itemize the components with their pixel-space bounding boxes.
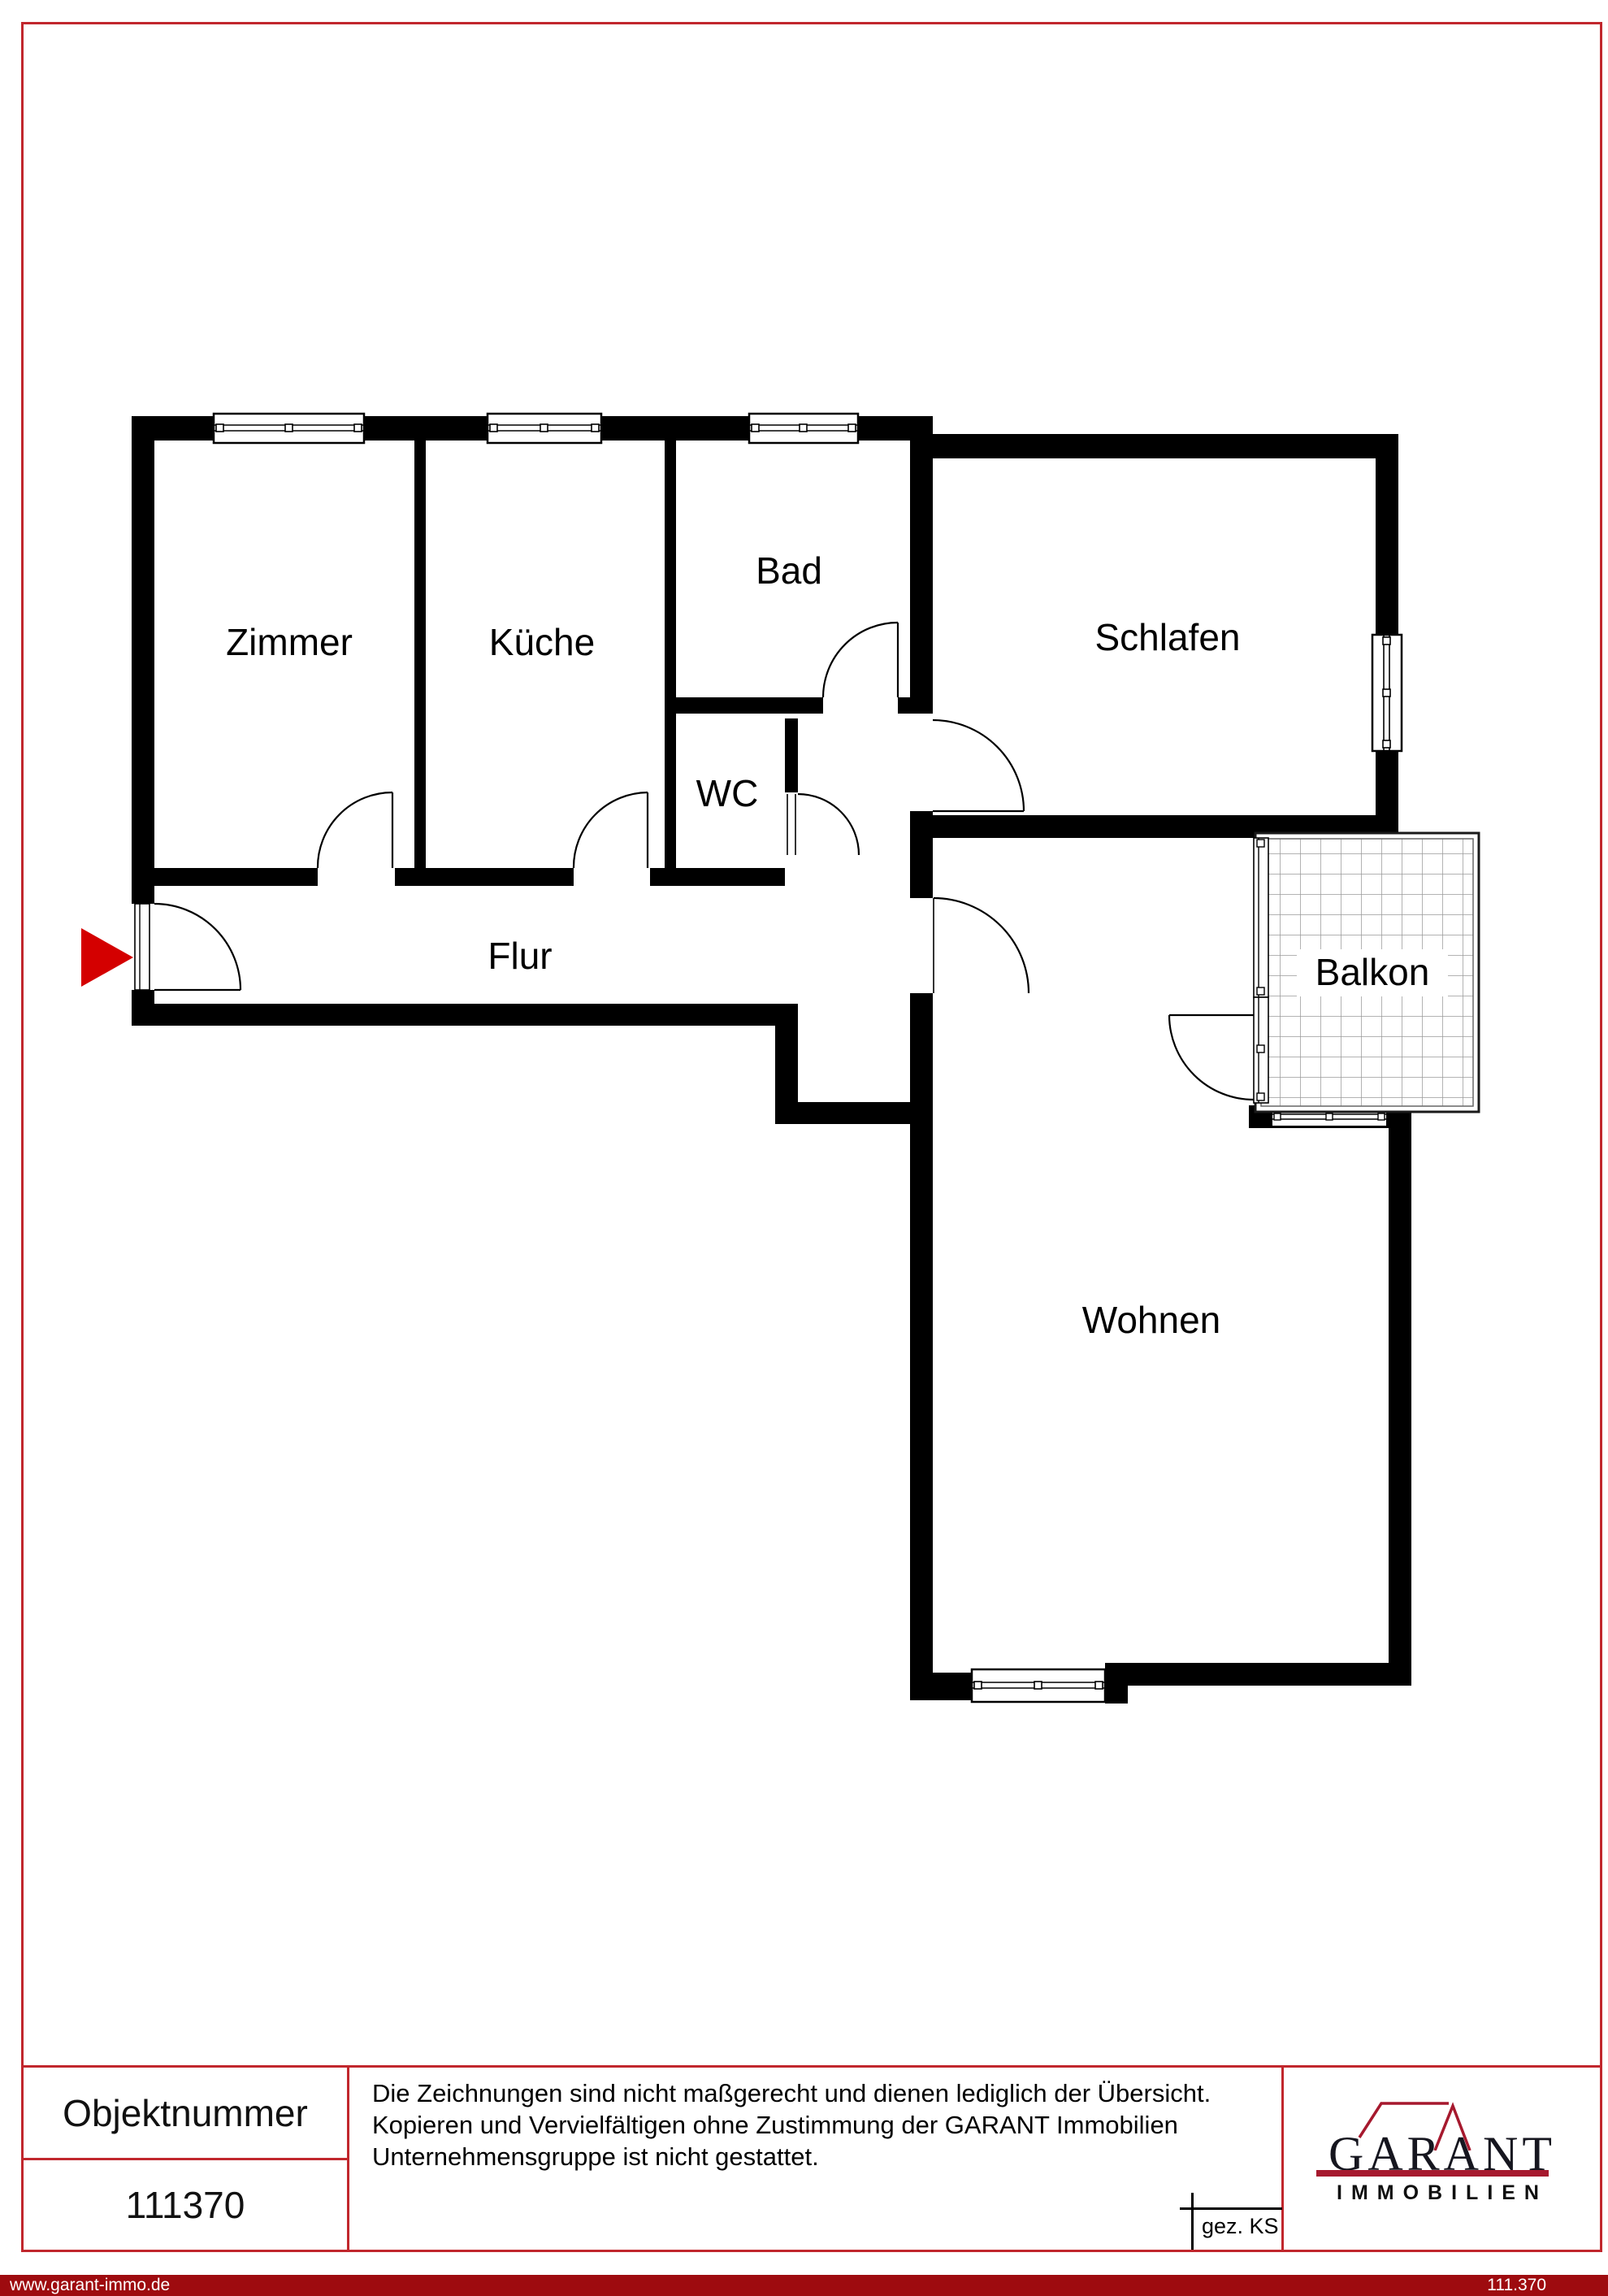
zimmer-door: [318, 792, 392, 868]
logo-roof-icon: [1341, 2097, 1479, 2151]
border-left: [21, 22, 24, 2252]
page-border-lines: [21, 22, 1602, 2252]
kueche-door: [574, 792, 648, 868]
balcony-door: [1169, 1015, 1254, 1100]
logo-underline: [1316, 2170, 1549, 2177]
wall-partition-zimmer-kueche: [414, 441, 426, 868]
border-top: [21, 22, 1602, 24]
window-kueche: [488, 414, 601, 443]
signature-box-left-line: [1191, 2193, 1194, 2250]
kueche-door-arc: [574, 792, 648, 868]
wall-hall-seg3: [650, 868, 785, 886]
wc-door: [787, 794, 859, 855]
wall-schlafen-top: [933, 434, 1398, 458]
wall-bad-schlafen-b: [910, 811, 933, 898]
wall-wohnen-bottom-right: [1105, 1663, 1411, 1686]
wall-wohnen-right: [1389, 1128, 1411, 1686]
balcony-door-panel: [1254, 838, 1268, 997]
bottom-bar-reference: 111.370: [1487, 2276, 1546, 2295]
wall-hall-seg2: [395, 868, 574, 886]
disclaimer-line-3: Unternehmensgruppe ist nicht gestattet.: [372, 2141, 1276, 2172]
room-label-balkon: Balkon: [1315, 951, 1430, 993]
object-number-label: Objektnummer: [24, 2068, 347, 2158]
window-schlafen: [1372, 635, 1402, 751]
wall-partition-kueche-bad: [665, 441, 676, 868]
wall-wc-right: [785, 718, 798, 792]
room-label-zimmer: Zimmer: [226, 621, 353, 663]
disclaimer-line-2: Kopieren und Vervielfältigen ohne Zustim…: [372, 2109, 1276, 2141]
balcony-door-arc: [1169, 1015, 1254, 1100]
wc-door-arc: [798, 794, 859, 855]
disclaimer-text: Die Zeichnungen sind nicht maßgerecht un…: [372, 2077, 1276, 2172]
wohnen-door: [934, 898, 1029, 993]
object-number-value: 111370: [24, 2160, 347, 2250]
bad-door-arc: [823, 623, 898, 697]
room-label-schlafen: Schlafen: [1094, 616, 1240, 658]
entrance-door-arc: [154, 904, 241, 990]
wall-bad-bottom-stub: [898, 697, 910, 714]
balcony-window-panel: [1254, 997, 1268, 1103]
room-label-kueche: Küche: [489, 621, 595, 663]
wall-hall-seg1: [154, 868, 318, 886]
wall-bad-schlafen-a: [910, 416, 933, 714]
logo-subtitle: IMMOBILIEN: [1282, 2181, 1602, 2205]
schlafen-door: [933, 720, 1024, 811]
room-label-bad: Bad: [756, 549, 822, 592]
wall-flur-bottom: [132, 1004, 798, 1026]
wall-bad-schlafen-c: [910, 993, 933, 1124]
floor-plan-drawing: Zimmer Küche Bad WC Schlafen Flur Balkon…: [0, 0, 1608, 2296]
windows: [214, 414, 1402, 1702]
disclaimer-line-1: Die Zeichnungen sind nicht maßgerecht un…: [372, 2077, 1276, 2109]
doors: [135, 623, 1254, 1100]
wohnen-door-arc: [934, 898, 1029, 993]
room-label-flur: Flur: [488, 935, 552, 977]
walls: [132, 416, 1411, 1704]
wall-bad-bottom: [665, 697, 823, 714]
bottom-bar: www.garant-immo.de 111.370: [0, 2275, 1608, 2296]
zimmer-door-arc: [318, 792, 392, 868]
signature-box-top-line: [1180, 2207, 1282, 2210]
schlafen-door-arc: [933, 720, 1024, 811]
wall-wohnen-bottom-step: [1105, 1663, 1128, 1704]
footer-bottom-line: [21, 2250, 1602, 2252]
wall-wohnen-left: [910, 1124, 933, 1700]
window-wohnen-bottom: [972, 1669, 1105, 1702]
bad-door: [823, 623, 898, 697]
bottom-bar-website: www.garant-immo.de: [10, 2276, 170, 2295]
room-labels: Zimmer Küche Bad WC Schlafen Flur Balkon…: [226, 549, 1429, 1341]
wall-corridor-lower: [775, 1102, 933, 1124]
wall-left: [132, 416, 154, 904]
window-bad: [749, 414, 858, 443]
window-zimmer: [214, 414, 364, 443]
signature-text: gez. KS: [1202, 2214, 1280, 2239]
border-right: [1600, 22, 1602, 2252]
entrance-door: [135, 904, 241, 990]
entrance-arrow-icon: [81, 928, 133, 987]
room-label-wc: WC: [696, 772, 759, 814]
wall-schlafen-right-a: [1376, 434, 1398, 635]
floor-plan-sheet: Zimmer Küche Bad WC Schlafen Flur Balkon…: [0, 0, 1608, 2296]
room-label-wohnen: Wohnen: [1082, 1299, 1221, 1341]
